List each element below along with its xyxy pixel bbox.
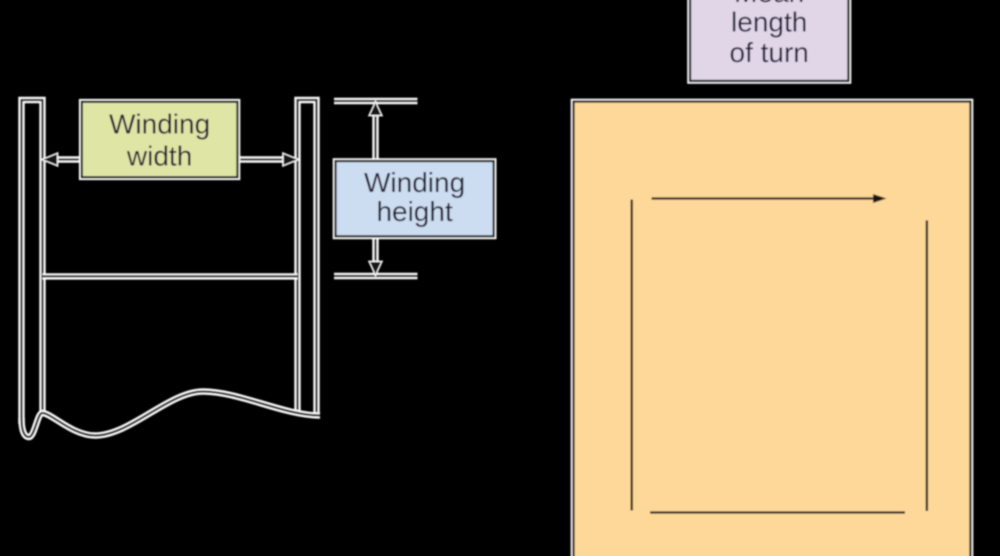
svg-text:height: height: [376, 196, 453, 227]
svg-text:Winding: Winding: [109, 109, 210, 140]
svg-text:Winding: Winding: [364, 167, 465, 198]
svg-text:width: width: [126, 141, 192, 172]
svg-text:length: length: [731, 7, 807, 38]
svg-text:of turn: of turn: [730, 37, 809, 68]
